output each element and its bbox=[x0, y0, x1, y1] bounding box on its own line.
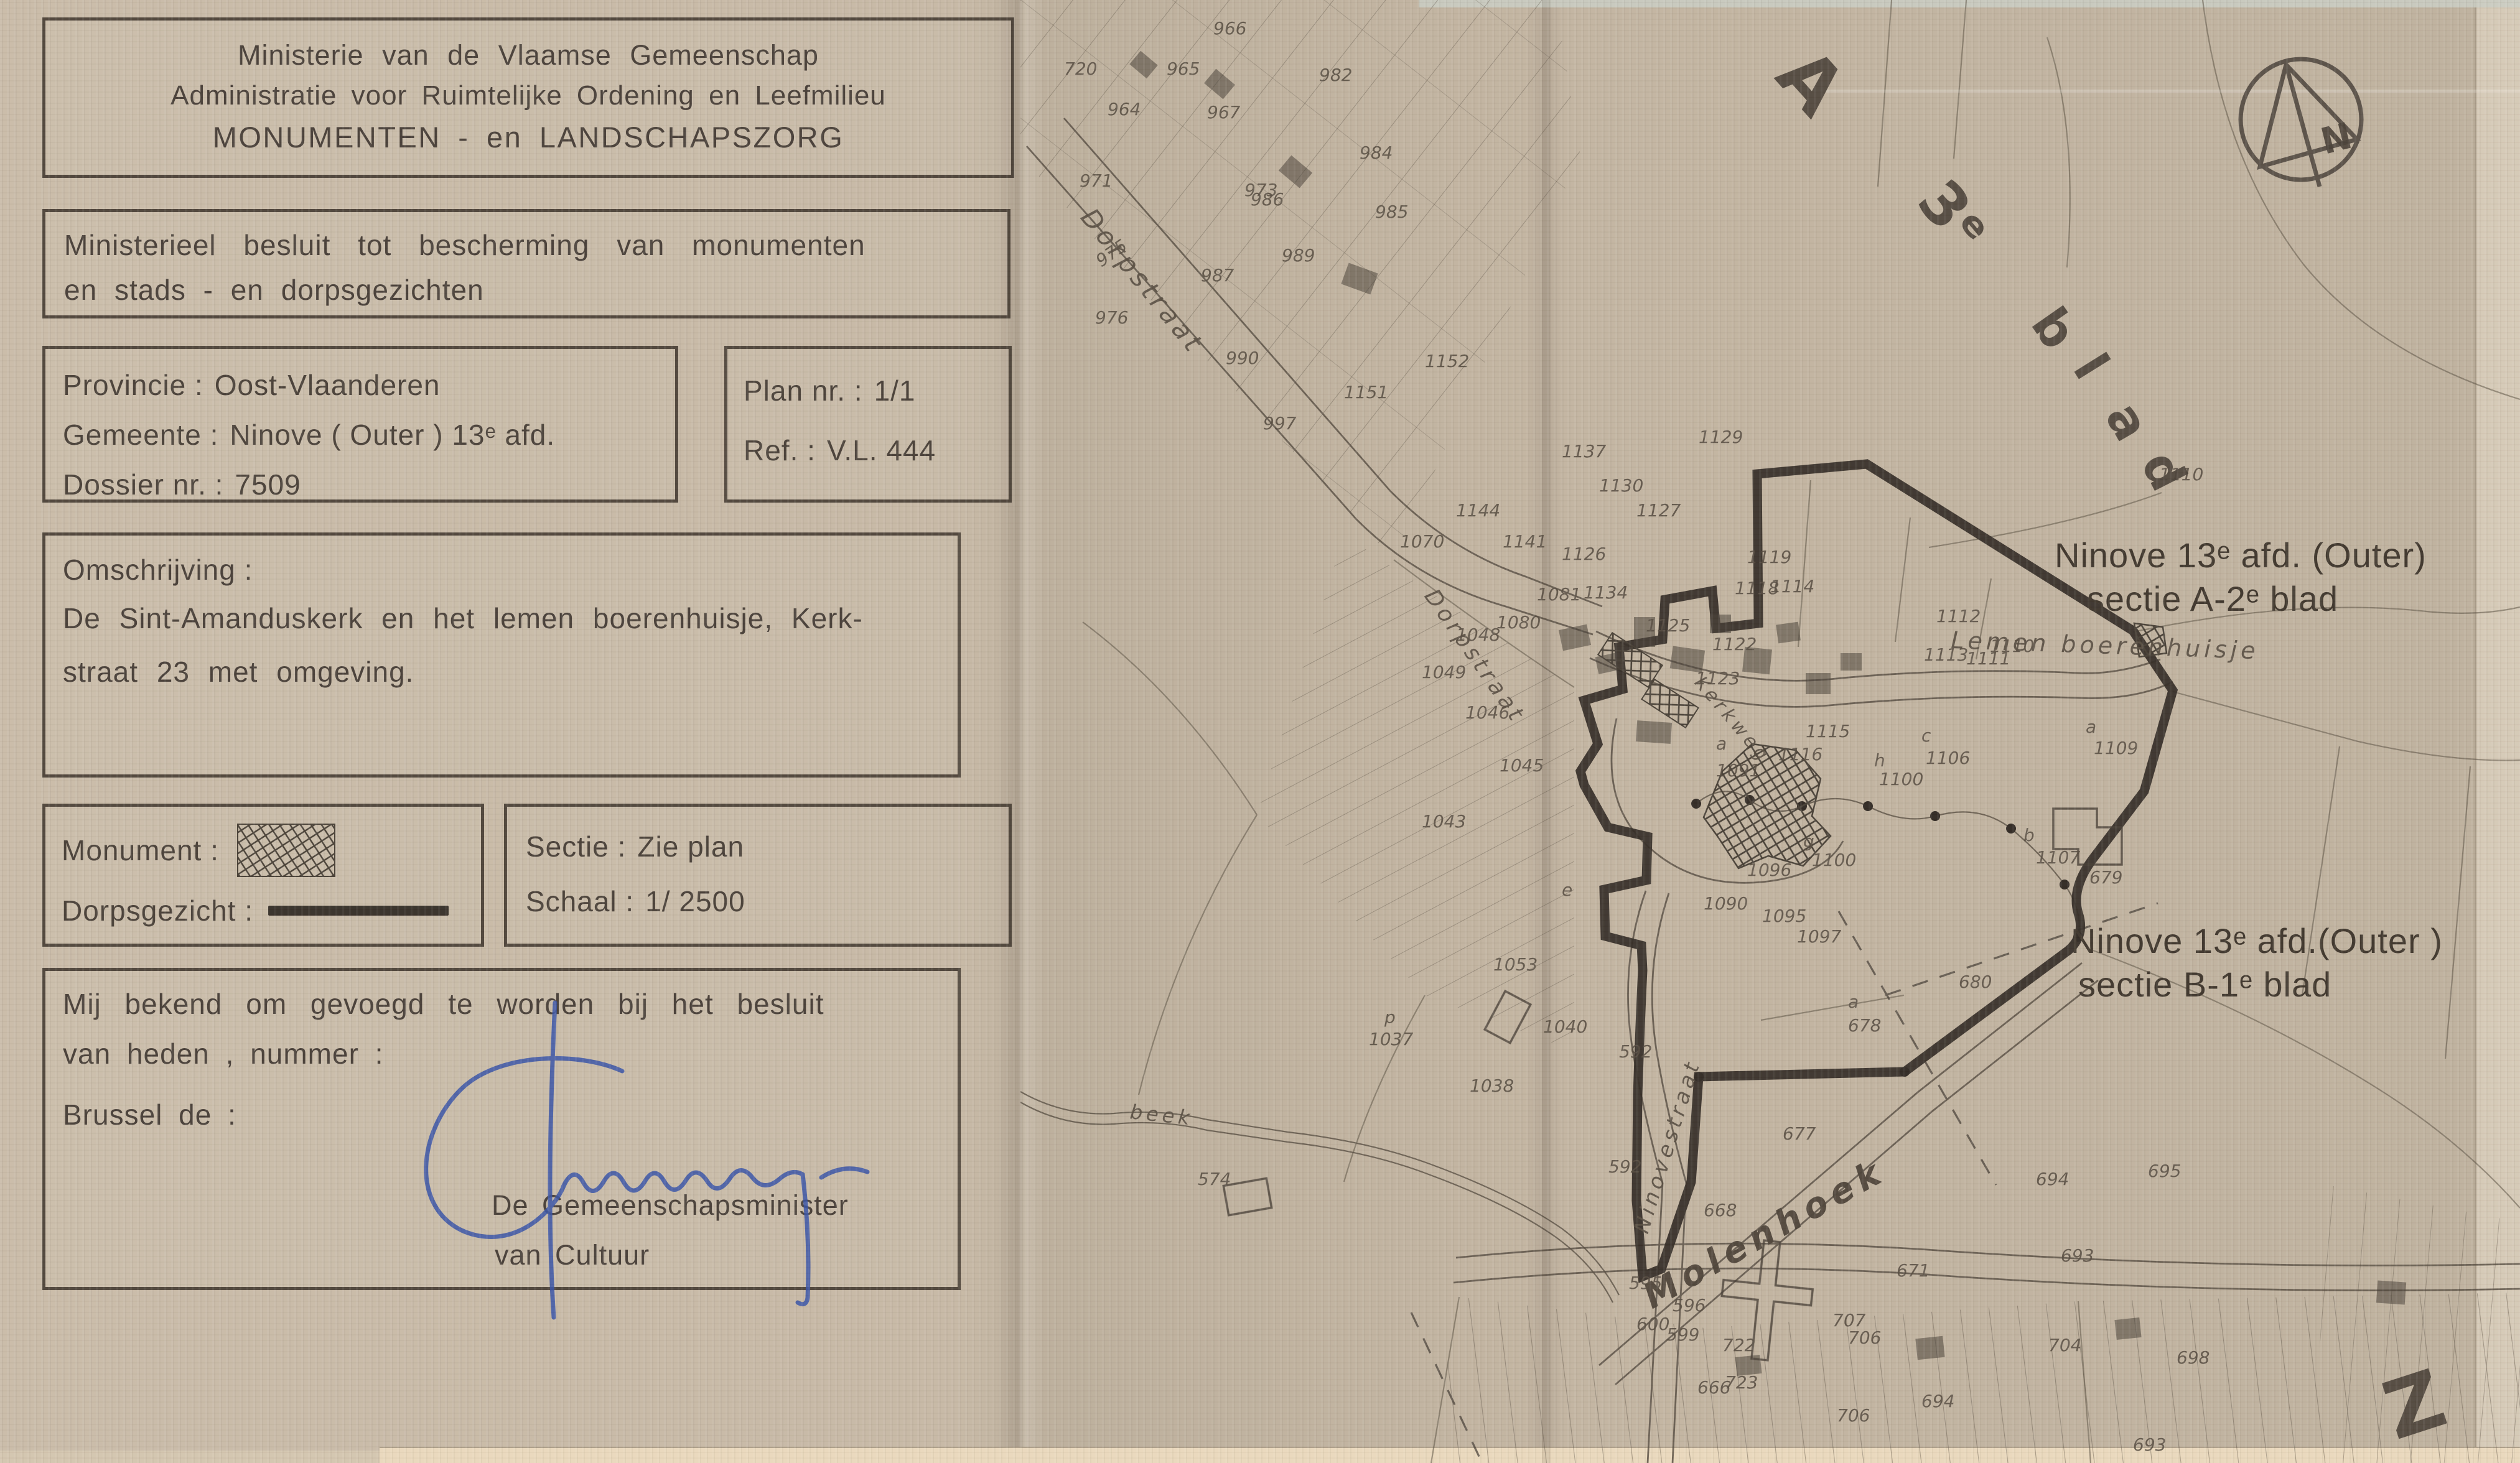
parcel-number-labels-item: 679 bbox=[2089, 867, 2122, 888]
parcel-number-labels-item: a bbox=[1716, 733, 1727, 754]
sectie-label: Sectie : bbox=[526, 830, 626, 863]
header-box: Ministerie van de Vlaamse Gemeenschap Ad… bbox=[42, 17, 1014, 178]
parcel-number-labels-item: 982 bbox=[1319, 65, 1352, 85]
handwritten-corner-marks-item: a bbox=[2094, 392, 2162, 450]
parcel-number-labels-item: 693 bbox=[2061, 1245, 2094, 1266]
parcel-number-labels-item: 1134 bbox=[1584, 582, 1628, 603]
parcel-number-labels-item: 1081 bbox=[1537, 584, 1581, 605]
parcel-number-labels-item: 723 bbox=[1725, 1372, 1758, 1393]
dossier-row: Dossier nr. :7509 bbox=[45, 460, 675, 509]
parcel-number-labels-item: 600 bbox=[1636, 1314, 1669, 1334]
parcel-number-labels-item: 1043 bbox=[1422, 811, 1466, 832]
parcel-number-labels-item: 677 bbox=[1783, 1123, 1816, 1144]
parcel-number-labels-item: b bbox=[2023, 825, 2035, 845]
ministry-title: Ministerie van de Vlaamse Gemeenschap bbox=[64, 21, 992, 72]
legend-box: Monument : Dorpsgezicht : bbox=[42, 804, 484, 947]
plan-row: Plan nr. :1/1 bbox=[727, 349, 1009, 412]
parcel-number-labels-item: 1123 bbox=[1696, 668, 1740, 689]
parcel-number-labels-item: 965 bbox=[1167, 58, 1200, 79]
closing-line2: van heden , nummer : bbox=[45, 1021, 958, 1071]
parcel-number-labels-item: 985 bbox=[1375, 202, 1408, 222]
parcel-number-labels-item: a bbox=[1848, 992, 1859, 1012]
parcel-number-labels-item: 1100 bbox=[1812, 850, 1856, 870]
parcel-number-labels-item: 1037 bbox=[1369, 1029, 1413, 1049]
schaal-value: 1/ 2500 bbox=[645, 885, 745, 917]
parcel-number-labels-item: 1130 bbox=[1599, 475, 1643, 496]
description-box: Omschrijving : De Sint-Amanduskerk en he… bbox=[42, 532, 961, 778]
closing-line3: Brussel de : bbox=[45, 1071, 958, 1131]
parcel-number-labels-item: 1116 bbox=[1778, 744, 1822, 764]
parcel-number-labels-item: e bbox=[1562, 880, 1572, 900]
parcel-number-labels-item: a bbox=[2086, 717, 2096, 737]
parcel-number-labels-item: 1115 bbox=[1806, 721, 1850, 741]
parcel-number-labels-item: 1090 bbox=[1704, 893, 1748, 914]
parcel-number-labels-item: 596 bbox=[1673, 1295, 1706, 1316]
parcel-number-labels-item: 1126 bbox=[1562, 544, 1606, 564]
sheet-label-top-line2: sectie A-2ᵉ blad bbox=[2087, 579, 2338, 618]
parcel-number-labels-item: 1038 bbox=[1470, 1075, 1514, 1096]
parcel-number-labels-item: 976 bbox=[1095, 307, 1128, 328]
parcel-number-labels-item: 989 bbox=[1282, 245, 1315, 266]
parcel-number-labels-item: 693 bbox=[2133, 1434, 2166, 1455]
sheet-labels: Ninove 13ᵉ afd. (Outer) sectie A-2ᵉ blad… bbox=[2055, 536, 2443, 1004]
street-labels-item: beek bbox=[1129, 1100, 1195, 1130]
parcel-number-labels-item: 984 bbox=[1360, 142, 1393, 163]
parcel-number-labels-item: 706 bbox=[1848, 1327, 1881, 1348]
sectie-row: Sectie :Zie plan bbox=[507, 807, 1009, 866]
provincie-label: Provincie : bbox=[63, 369, 203, 401]
sheet-label-bottom-line1: Ninove 13ᵉ afd.(Outer ) bbox=[2071, 921, 2443, 960]
parcel-number-labels-item: 1070 bbox=[1400, 531, 1444, 552]
parcel-number-labels-item: 997 bbox=[1263, 413, 1297, 434]
parcel-number-labels-item: 1122 bbox=[1712, 634, 1757, 654]
parcel-number-labels-item: 964 bbox=[1108, 99, 1141, 119]
parcel-number-labels-item: 695 bbox=[2148, 1161, 2181, 1181]
parcel-number-labels-item: 1127 bbox=[1636, 500, 1681, 521]
ref-value: V.L. 444 bbox=[827, 434, 936, 467]
parcel-number-labels-item: 1112 bbox=[1936, 606, 1981, 626]
parcel-number-labels-item: c bbox=[1921, 725, 1931, 746]
parcel-number-labels-item: 1113 bbox=[1924, 644, 1968, 665]
plan-value: 1/1 bbox=[874, 374, 916, 407]
parcel-number-labels-item: 971 bbox=[1080, 170, 1113, 191]
parcel-number-labels-item: 698 bbox=[2177, 1347, 2210, 1368]
parcel-number-labels-item: h bbox=[1874, 750, 1885, 771]
north-letter: N bbox=[2317, 114, 2356, 163]
provincie-value: Oost-Vlaanderen bbox=[215, 369, 441, 401]
parcel-number-labels-item: 1119 bbox=[1747, 547, 1791, 567]
parcel-number-labels-item: g bbox=[1803, 831, 1814, 852]
parcel-number-labels-item: 966 bbox=[1213, 18, 1246, 39]
monument-legend-row: Monument : bbox=[45, 807, 481, 878]
dorpsgezicht-legend-row: Dorpsgezicht : bbox=[45, 878, 481, 927]
parcel-number-labels-item: 1049 bbox=[1422, 662, 1466, 682]
monument-label: Monument : bbox=[62, 834, 219, 867]
department-title: MONUMENTEN - en LANDSCHAPSZORG bbox=[64, 111, 992, 154]
sheet-label-bottom-line2: sectie B-1ᵉ blad bbox=[2078, 965, 2331, 1004]
parcel-number-labels-item: 722 bbox=[1722, 1335, 1755, 1355]
sectie-box: Sectie :Zie plan Schaal :1/ 2500 bbox=[504, 804, 1012, 947]
signer-title-line2: van Cultuur bbox=[495, 1239, 650, 1271]
parcel-number-labels-item: 599 bbox=[1666, 1324, 1699, 1345]
dorpsgezicht-line-icon bbox=[268, 906, 449, 916]
handwritten-corner-marks-item: 3ᵉ bbox=[1904, 167, 2002, 265]
parcel-number-labels-item: 1114 bbox=[1770, 576, 1814, 597]
parcel-number-labels-item: 671 bbox=[1897, 1260, 1930, 1281]
parcel-number-labels-item: p bbox=[1384, 1007, 1396, 1028]
parcel-number-labels-item: 1096 bbox=[1747, 860, 1791, 880]
handwritten-corner-marks-item: A bbox=[1760, 32, 1862, 131]
decree-box: Ministerieel besluit tot bescherming van… bbox=[42, 209, 1010, 318]
plan-label: Plan nr. : bbox=[744, 374, 863, 407]
decree-line2: en stads - en dorpsgezichten bbox=[45, 262, 1007, 307]
parcel-number-labels-item: 720 bbox=[1064, 58, 1097, 79]
parcel-number-labels-item: 678 bbox=[1848, 1015, 1881, 1036]
gemeente-value: Ninove ( Outer ) 13ᵉ afd. bbox=[230, 419, 555, 451]
parcel-number-labels-item: 574 bbox=[1198, 1169, 1231, 1189]
parcel-number-labels-item: 1137 bbox=[1562, 441, 1606, 462]
description-line1: De Sint-Amanduskerk en het lemen boerenh… bbox=[45, 587, 958, 635]
closing-line1: Mij bekend om gevoegd te worden bij het … bbox=[45, 971, 958, 1021]
sheet-label-top-line1: Ninove 13ᵉ afd. (Outer) bbox=[2055, 536, 2427, 575]
handwritten-corner-marks-item: b bbox=[2020, 297, 2088, 360]
parcel-number-labels-item: 704 bbox=[2048, 1335, 2081, 1355]
provincie-row: Provincie :Oost-Vlaanderen bbox=[45, 349, 675, 410]
parcel-number-labels-item: 1110 bbox=[1990, 636, 2034, 656]
parcel-number-labels-item: 1091 bbox=[1716, 760, 1760, 781]
parcel-number-labels-item: 592 bbox=[1608, 1156, 1641, 1177]
parcel-number-labels-item: 1046 bbox=[1465, 702, 1510, 723]
description-line2: straat 23 met omgeving. bbox=[45, 635, 958, 689]
parcel-number-labels-item: 1045 bbox=[1500, 755, 1544, 776]
ref-label: Ref. : bbox=[744, 434, 816, 467]
schaal-label: Schaal : bbox=[526, 885, 634, 917]
decree-line1: Ministerieel besluit tot bescherming van… bbox=[45, 212, 1007, 262]
parcel-number-labels-item: 668 bbox=[1704, 1200, 1737, 1220]
parcel-number-labels-item: 706 bbox=[1837, 1405, 1870, 1426]
ref-row: Ref. :V.L. 444 bbox=[727, 412, 1009, 472]
parcel-number-labels-item: 1053 bbox=[1493, 954, 1538, 975]
schaal-row: Schaal :1/ 2500 bbox=[507, 866, 1009, 921]
scanned-decree-document: Ministerie van de Vlaamse Gemeenschap Ad… bbox=[0, 0, 2520, 1463]
parcel-number-labels-item: 595 bbox=[1629, 1273, 1662, 1293]
gemeente-label: Gemeente : bbox=[63, 419, 218, 451]
dorpsgezicht-label: Dorpsgezicht : bbox=[62, 894, 253, 927]
monument-hatch-swatch-icon bbox=[236, 823, 336, 878]
parcel-number-labels-item: 1106 bbox=[1926, 748, 1970, 768]
plan-box: Plan nr. :1/1 Ref. :V.L. 444 bbox=[724, 346, 1012, 503]
parcel-number-labels-item: 1141 bbox=[1503, 531, 1547, 552]
parcel-number-labels-item: 1109 bbox=[2094, 738, 2138, 758]
dossier-label: Dossier nr. : bbox=[63, 468, 223, 501]
handwritten-corner-marks-item: d bbox=[2130, 442, 2198, 499]
paper-edge bbox=[0, 1451, 380, 1463]
cadastral-map: N Ninove 13ᵉ afd. (Outer) sectie A-2ᵉ bl… bbox=[1020, 0, 2520, 1463]
parcel-number-labels-item: 1125 bbox=[1646, 615, 1690, 636]
parcel-number-labels-item: 1144 bbox=[1456, 500, 1500, 521]
parcel-number-labels-item: 694 bbox=[2036, 1169, 2069, 1189]
handwritten-corner-marks-item: l bbox=[2062, 344, 2120, 389]
parcel-number-labels-item: 1152 bbox=[1425, 351, 1469, 371]
description-label: Omschrijving : bbox=[45, 536, 958, 587]
parcel-number-labels-item: 987 bbox=[1201, 265, 1234, 286]
parcel-number-labels-item: 1151 bbox=[1344, 382, 1388, 402]
parcel-number-labels-item: 1107 bbox=[2036, 847, 2080, 868]
gemeente-row: Gemeente :Ninove ( Outer ) 13ᵉ afd. bbox=[45, 410, 675, 460]
parcel-number-labels-item: 694 bbox=[1921, 1391, 1954, 1411]
parcel-number-labels-item: 1040 bbox=[1543, 1016, 1587, 1037]
sectie-value: Zie plan bbox=[637, 830, 744, 863]
parcel-number-labels-item: 592 bbox=[1619, 1041, 1652, 1062]
parcel-number-labels-item: 1129 bbox=[1699, 427, 1743, 447]
parcel-number-labels-item: 680 bbox=[1959, 972, 1992, 992]
parcel-number-labels-item: 1080 bbox=[1496, 612, 1541, 633]
parcel-number-labels-item: 990 bbox=[1226, 348, 1259, 368]
dossier-value: 7509 bbox=[235, 468, 301, 501]
parcel-number-labels-item: 967 bbox=[1207, 102, 1241, 123]
parcel-number-labels-item: 1100 bbox=[1879, 769, 1923, 789]
parcel-number-labels-item: 986 bbox=[1251, 189, 1284, 210]
parcel-number-labels-item: 1095 bbox=[1762, 906, 1806, 926]
parcel-number-labels-item: 1097 bbox=[1797, 926, 1841, 947]
administration-title: Administratie voor Ruimtelijke Ordening … bbox=[64, 72, 992, 111]
signer-title-line1: De Gemeenschapsminister bbox=[492, 1189, 849, 1222]
dossier-box: Provincie :Oost-Vlaanderen Gemeente :Nin… bbox=[42, 346, 678, 503]
parcel-number-labels-item: 1048 bbox=[1456, 625, 1500, 645]
